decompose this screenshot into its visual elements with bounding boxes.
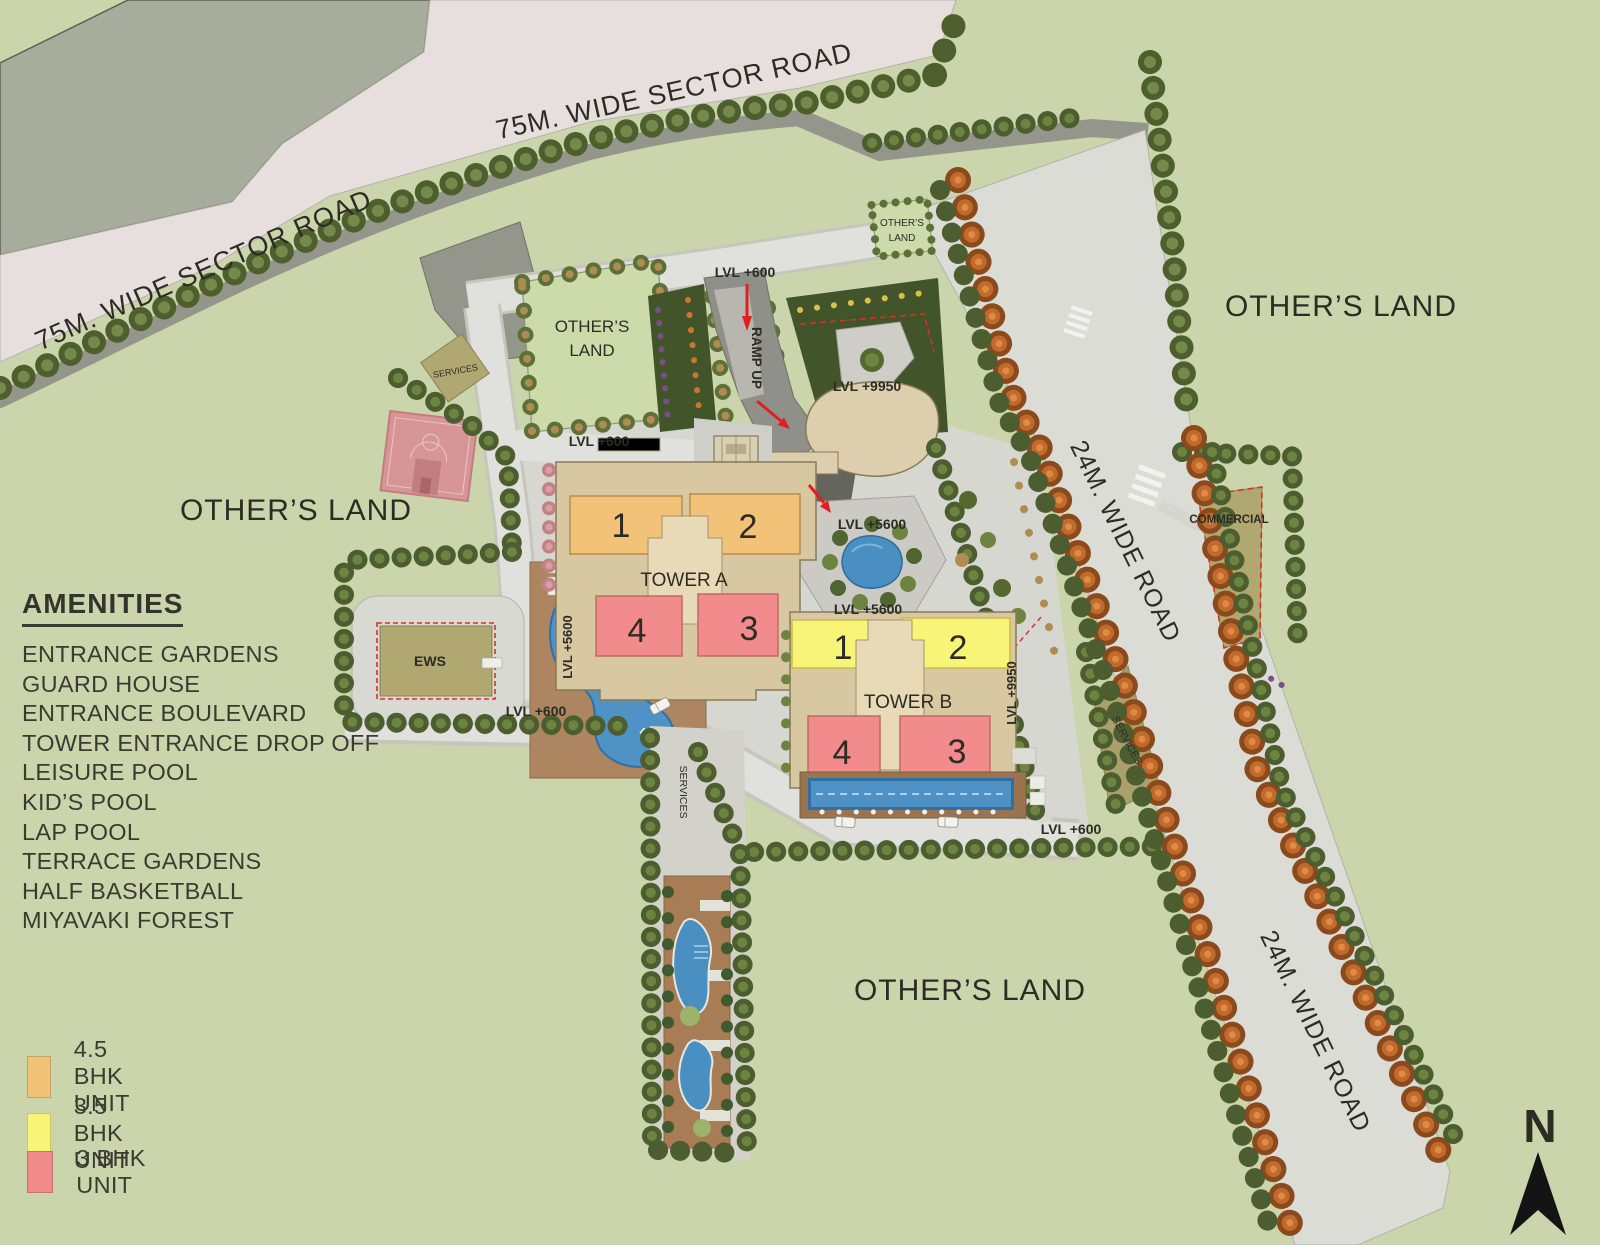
tower-a-unit-1-label: 1 [612,507,631,545]
tower-b-unit-2-label: 2 [949,629,968,667]
amenity-item: GUARD HOUSE [22,670,379,700]
level-label: LVL +600 [1041,821,1102,837]
ews-label: EWS [414,653,446,669]
deck-slat [700,1110,730,1121]
deck-tile [1030,776,1045,789]
others-land-plot-label: OTHER’S [555,317,630,336]
level-label: LVL +5600 [560,615,575,678]
deck-tile [1030,792,1045,805]
others-land-small-label: OTHER’S [880,218,924,229]
north-arrow-icon [1510,1152,1566,1235]
deck-hatch [1012,748,1036,764]
garden-bush [980,532,996,548]
north-arrow: N [1510,1100,1566,1235]
ramp-up-label: RAMP UP [749,327,764,389]
legend-swatch-3bhk [27,1151,53,1193]
car [938,817,958,828]
amenity-item: ENTRANCE BOULEVARD [22,699,379,729]
level-label: LVL +600 [715,264,776,280]
others-land-small-label: LAND [889,233,916,244]
level-label: LVL +5600 [834,601,903,617]
level-label: LVL +600 [506,703,567,719]
level-label: LVL +5600 [838,516,907,532]
amenity-item: LAP POOL [22,818,379,848]
tower-a-unit-4-label: 4 [628,612,647,650]
strip-lawn [693,1119,711,1137]
garden-bush [955,553,969,567]
garden-northwest [648,284,716,432]
amenity-item: KID’S POOL [22,788,379,818]
tower-a-unit-3 [698,594,778,656]
plaza-bush-light [865,353,879,367]
tower-a-label: TOWER A [640,570,728,591]
amenity-item: TOWER ENTRANCE DROP OFF [22,729,379,759]
level-label: LVL +9950 [833,378,902,394]
amenities-title: AMENITIES [22,588,183,627]
garden-bush [993,579,1011,597]
tower-b-unit-1-label: 1 [834,629,853,667]
legend-label: 3 BHK UNIT [76,1145,151,1199]
others-land-label: OTHER’S LAND [180,494,412,527]
level-label: LVL +600 [569,433,630,449]
north-label: N [1523,1100,1556,1152]
amenity-item: TERRACE GARDENS [22,847,379,877]
tower-b-unit-3 [900,716,990,778]
legend-row: 3 BHK UNIT [27,1145,151,1199]
amenity-item: HALF BASKETBALL [22,877,379,907]
legend-swatch-4-5bhk [27,1056,51,1098]
garden-bush [959,491,977,509]
car [835,816,856,827]
level-label: LVL +9950 [1004,661,1019,724]
tower-b-unit-4-label: 4 [833,734,852,772]
strip-lawn [680,1006,700,1026]
tower-b-unit-3-label: 3 [948,733,967,771]
site-plan: 75M. WIDE SECTOR ROAD 75M. WIDE SECTOR R… [0,0,1600,1245]
amenity-item: ENTRANCE GARDENS [22,640,379,670]
others-land-plot-label: LAND [569,341,614,360]
tower-a-unit-2-label: 2 [739,508,758,546]
strip-pool-2 [679,1040,712,1110]
services-label: SERVICES [677,766,689,819]
others-land-label: OTHER’S LAND [1225,290,1457,323]
tower-b-label: TOWER B [864,692,952,713]
others-land-label: OTHER’S LAND [854,974,1086,1007]
tower-a-unit-3-label: 3 [740,610,759,648]
amenity-item: MIYAVAKI FOREST [22,906,379,936]
amenities-panel: AMENITIES ENTRANCE GARDENS GUARD HOUSE E… [22,588,379,936]
amenity-item: LEISURE POOL [22,758,379,788]
ews-entry [482,658,502,668]
commercial-label: COMMERCIAL [1189,514,1268,526]
